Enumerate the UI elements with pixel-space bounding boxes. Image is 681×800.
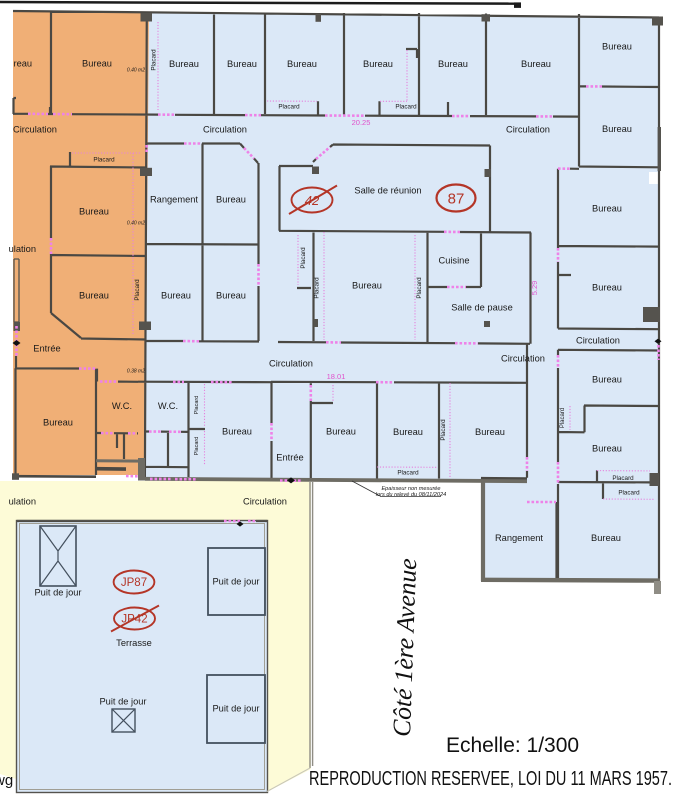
svg-text:Placard: Placard [314, 277, 321, 299]
svg-text:Salle de réunion: Salle de réunion [354, 186, 421, 196]
svg-text:Bureau: Bureau [363, 59, 393, 69]
svg-text:Placard: Placard [194, 396, 200, 415]
svg-text:Placard: Placard [440, 419, 447, 441]
svg-text:Circulation: Circulation [576, 336, 620, 346]
svg-text:Bureau: Bureau [592, 204, 622, 214]
svg-text:Placard: Placard [93, 157, 115, 164]
svg-text:Bureau: Bureau [352, 281, 382, 291]
svg-text:Circulation: Circulation [506, 125, 550, 135]
svg-text:Circulation: Circulation [269, 359, 313, 369]
svg-text:Puit de jour: Puit de jour [99, 697, 146, 707]
svg-text:Bureau: Bureau [227, 59, 257, 69]
svg-text:Circulation: Circulation [203, 125, 247, 135]
svg-text:Bureau: Bureau [43, 418, 73, 428]
svg-text:20.25: 20.25 [352, 118, 371, 127]
svg-text:Placard: Placard [397, 470, 419, 477]
svg-text:Circulation: Circulation [13, 125, 57, 135]
svg-text:Bureau: Bureau [79, 207, 109, 217]
svg-text:0.38 m2: 0.38 m2 [127, 369, 145, 375]
svg-text:REPRODUCTION RESERVEE, LOI DU: REPRODUCTION RESERVEE, LOI DU 11 MARS 19… [309, 768, 672, 790]
svg-text:Bureau: Bureau [591, 533, 621, 543]
svg-text:87: 87 [448, 191, 465, 208]
svg-text:Bureau: Bureau [592, 444, 622, 454]
svg-text:5.29: 5.29 [530, 281, 539, 296]
svg-text:Placard: Placard [612, 475, 634, 482]
svg-text:Entrée: Entrée [33, 344, 60, 354]
svg-text:Entrée: Entrée [276, 453, 303, 463]
svg-text:Bureau: Bureau [438, 59, 468, 69]
svg-text:Placard: Placard [395, 104, 417, 111]
svg-text:Circulation: Circulation [501, 354, 545, 364]
svg-text:Rangement: Rangement [495, 533, 543, 543]
svg-text:Bureau: Bureau [602, 42, 632, 52]
svg-text:Placard: Placard [416, 277, 423, 299]
svg-text:W.C.: W.C. [158, 401, 178, 411]
svg-text:Bureau: Bureau [82, 59, 112, 69]
svg-text:Placard: Placard [134, 279, 141, 301]
svg-text:Rangement: Rangement [150, 195, 198, 205]
svg-text:Bureau: Bureau [216, 195, 246, 205]
svg-text:18.01: 18.01 [327, 372, 346, 381]
svg-text:wg: wg [0, 772, 13, 789]
svg-text:Bureau: Bureau [216, 291, 246, 301]
svg-text:Bureau: Bureau [79, 291, 109, 301]
svg-text:Puit de jour: Puit de jour [34, 588, 81, 598]
svg-text:Bureau: Bureau [161, 291, 191, 301]
svg-text:Bureau: Bureau [475, 427, 505, 437]
svg-text:0.40 m2: 0.40 m2 [127, 221, 145, 227]
svg-text:Bureau: Bureau [222, 427, 252, 437]
svg-text:Placard: Placard [618, 490, 640, 497]
svg-text:Puit de jour: Puit de jour [212, 577, 259, 587]
svg-text:Salle de pause: Salle de pause [451, 303, 513, 313]
svg-text:Placard: Placard [560, 408, 566, 428]
svg-text:Bureau: Bureau [287, 59, 317, 69]
svg-text:reau: reau [14, 59, 33, 69]
svg-text:Placard: Placard [194, 437, 200, 456]
svg-text:Placard: Placard [278, 104, 300, 111]
svg-text:0.40 m2: 0.40 m2 [127, 68, 145, 74]
svg-text:Bureau: Bureau [393, 427, 423, 437]
svg-text:Cuisine: Cuisine [438, 256, 469, 266]
svg-text:Bureau: Bureau [169, 59, 199, 69]
svg-text:Echelle: 1/300: Echelle: 1/300 [446, 734, 579, 757]
svg-text:W.C.: W.C. [112, 401, 132, 411]
svg-text:ulation: ulation [9, 244, 36, 254]
svg-text:Puit de jour: Puit de jour [212, 704, 259, 714]
svg-text:Placard: Placard [151, 49, 158, 71]
svg-text:Bureau: Bureau [602, 124, 632, 134]
svg-text:Bureau: Bureau [592, 283, 622, 293]
svg-text:Placard: Placard [300, 247, 307, 269]
svg-text:JP87: JP87 [121, 577, 147, 589]
svg-text:Circulation: Circulation [243, 497, 287, 507]
svg-text:ulation: ulation [9, 497, 36, 507]
svg-text:Bureau: Bureau [592, 375, 622, 385]
svg-text:Bureau: Bureau [326, 427, 356, 437]
svg-text:Bureau: Bureau [521, 59, 551, 69]
svg-text:Terrasse: Terrasse [116, 638, 152, 648]
svg-text:lors du relevé du 08/11/2024: lors du relevé du 08/11/2024 [376, 492, 447, 498]
